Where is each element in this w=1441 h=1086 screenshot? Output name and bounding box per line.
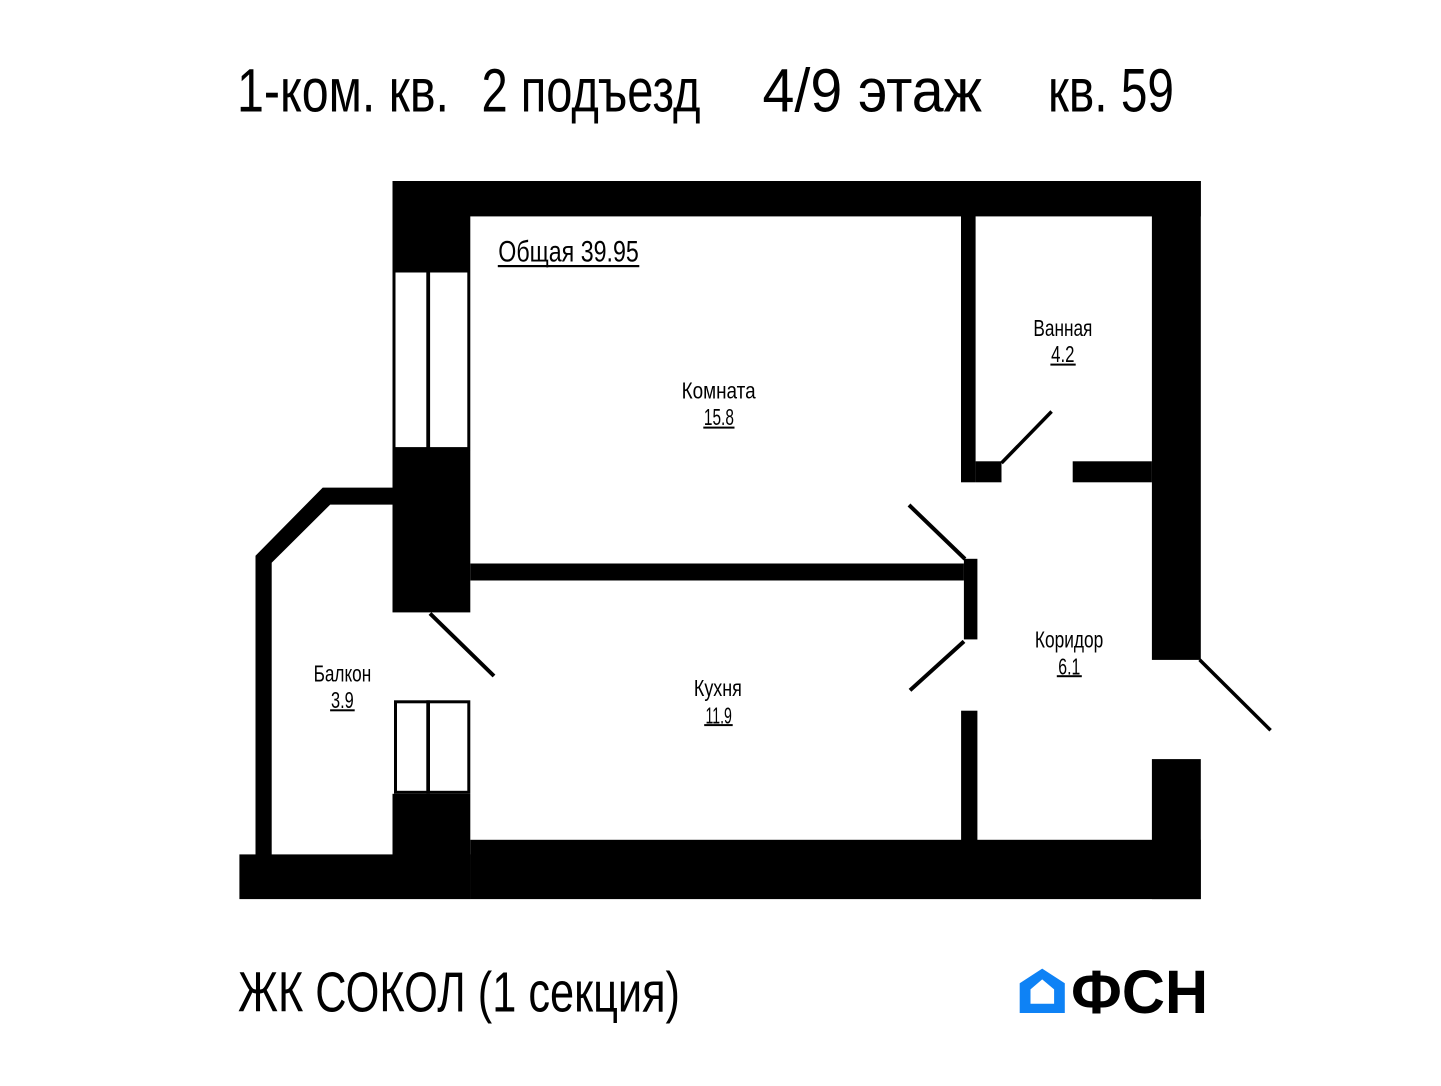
svg-text:Ванная: Ванная [1033,315,1092,341]
svg-text:Коридор: Коридор [1035,626,1103,652]
svg-text:15.8: 15.8 [704,404,734,430]
svg-text:Комната: Комната [682,378,756,404]
svg-text:Балкон: Балкон [314,661,372,687]
svg-text:2 подъезд: 2 подъезд [482,57,701,125]
svg-text:3.9: 3.9 [331,687,354,713]
svg-text:Общая 39.95: Общая 39.95 [498,236,639,269]
svg-text:1-ком. кв.: 1-ком. кв. [237,57,449,125]
svg-text:ЖК СОКОЛ (1 секция): ЖК СОКОЛ (1 секция) [238,961,680,1025]
svg-text:4/9 этаж: 4/9 этаж [763,57,983,125]
svg-text:4.2: 4.2 [1051,341,1074,367]
svg-text:кв. 59: кв. 59 [1048,57,1174,125]
svg-text:Кухня: Кухня [694,675,742,701]
svg-text:ФСН: ФСН [1071,958,1208,1026]
